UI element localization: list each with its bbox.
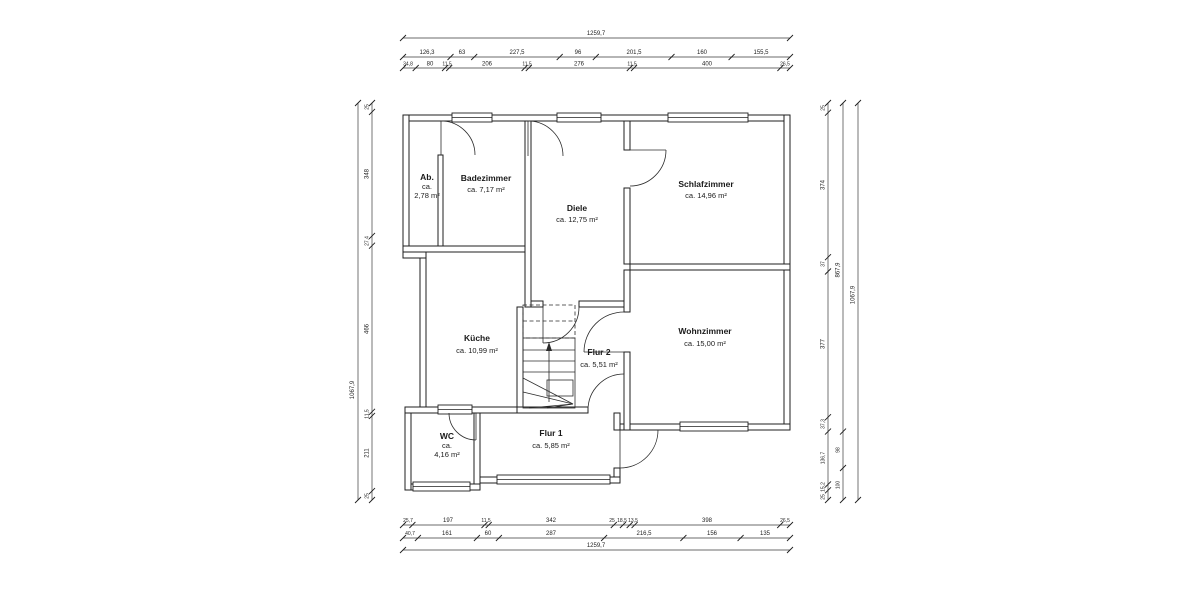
dim-label: 11,5 [481,518,491,524]
dim-label: 201,5 [626,50,642,56]
room-name: Flur 2 [587,347,610,357]
floor-plan-drawing: Ab. ca. 2,78 m² Badezimmer ca. 7,17 m² D… [0,0,1200,600]
room-name: Ab. [420,172,434,182]
dim-label: 15,2 [821,482,827,492]
door-icon [441,121,475,155]
window-icon [438,405,472,414]
dim-label: 348 [365,168,371,179]
dim-label: 276 [574,62,585,68]
dimension-top: 1259,7 126,3 63 227,5 96 201,5 160 155,5… [400,31,793,71]
dim-label: 400 [702,62,713,68]
dim-label: 11,5 [627,62,637,68]
dim-label: 867,9 [836,262,842,278]
dim-label: 25 [821,494,827,500]
room-area: ca. 5,85 m² [532,441,570,450]
dim-label: 18,5 [617,518,627,524]
dim-label: 98 [836,447,842,453]
dim-label: 342 [546,518,557,524]
room-name: Wohnzimmer [678,326,732,336]
dim-label: 37,3 [821,419,827,429]
dim-label: 206 [482,62,493,68]
door-icon [584,312,624,352]
dim-label: 60 [485,531,492,537]
dimension-right: 25 374 37 377 37,3 136,7 15,2 25 867,9 9… [821,100,862,503]
room-labels: Ab. ca. 2,78 m² Badezimmer ca. 7,17 m² D… [414,172,734,459]
dim-label: 11,5 [442,62,452,68]
door-icon [588,374,624,410]
door-icon [630,150,666,186]
dim-label: 25 [365,493,371,499]
dim-label: 27,4 [365,236,371,246]
dim-label: 80 [427,62,434,68]
dim-label: 1067,9 [851,285,857,304]
window-icon [413,482,470,491]
dim-label: 37 [821,261,827,267]
room-area: ca. 15,00 m² [684,339,726,348]
dimension-bottom: 25,7 197 11,5 342 25 18,5 13,5 398 26,5 … [400,518,793,553]
window-icon [497,475,610,484]
dim-label: 13,5 [628,518,638,524]
dim-label: 1259,7 [587,543,606,549]
room-name: Schlafzimmer [678,179,734,189]
room-area: ca. 12,75 m² [556,215,598,224]
dim-label: 25,7 [403,518,413,524]
dim-label: 161 [442,531,453,537]
dim-label: 1259,7 [587,31,606,37]
dim-label: 155,5 [753,50,769,56]
dim-label: 96 [575,50,582,56]
dim-label: 25 [821,105,827,111]
room-label-diele: Diele ca. 12,75 m² [556,203,598,224]
dim-label: 398 [702,518,713,524]
room-name: Küche [464,333,490,343]
dim-label: 25 [365,104,371,110]
room-label-kueche: Küche ca. 10,99 m² [456,333,498,355]
staircase [523,305,575,408]
dim-label: 466 [365,323,371,334]
room-area: 2,78 m² [414,191,440,200]
door-icon [620,430,658,468]
room-area: ca. [442,441,452,450]
room-area: ca. 7,17 m² [467,185,505,194]
dim-label: 126,3 [419,50,435,56]
dim-label: 135 [760,531,771,537]
room-label-schlafzimmer: Schlafzimmer ca. 14,96 m² [678,179,734,200]
room-name: Diele [567,203,588,213]
dim-label: 1067,9 [350,380,356,399]
room-area: ca. 10,99 m² [456,346,498,355]
room-area: ca. 14,96 m² [685,191,727,200]
dim-label: 40,7 [405,531,415,537]
dim-label: 287 [546,531,557,537]
dim-label: 26,5 [780,62,790,68]
door-icon [528,121,563,156]
dim-label: 25 [609,518,615,524]
room-label-wohnzimmer: Wohnzimmer ca. 15,00 m² [678,326,732,348]
window-icon [668,113,748,122]
floor-plan-page: Ab. ca. 2,78 m² Badezimmer ca. 7,17 m² D… [0,0,1200,600]
dim-label: 227,5 [509,50,525,56]
window-icon [452,113,492,122]
dim-label: 156 [707,531,718,537]
dim-label: 160 [697,50,708,56]
dim-label: 11,5 [522,62,532,68]
room-name: Flur 1 [539,428,562,438]
room-area: ca. [422,182,432,191]
room-area: ca. 5,51 m² [580,360,618,369]
room-label-flur1: Flur 1 ca. 5,85 m² [532,428,570,450]
room-label-badezimmer: Badezimmer ca. 7,17 m² [461,173,512,194]
dim-label: 100 [836,481,842,490]
room-label-wc: WC ca. 4,16 m² [434,431,460,459]
dim-label: 136,7 [821,452,827,465]
dim-label: 34,8 [403,62,413,68]
room-name: WC [440,431,454,441]
dim-label: 26,5 [780,518,790,524]
room-label-ab: Ab. ca. 2,78 m² [414,172,440,200]
window-icon [680,422,748,431]
dim-label: 11,5 [365,409,371,419]
walls [403,115,790,490]
dimension-left: 1067,9 25 348 27,4 466 11,5 211 25 [350,100,375,503]
dim-label: 374 [821,179,827,190]
room-area: 4,16 m² [434,450,460,459]
window-icon [557,113,601,122]
room-label-flur2: Flur 2 ca. 5,51 m² [580,347,618,369]
dim-label: 216,5 [636,531,652,537]
dim-label: 377 [821,338,827,349]
room-name: Badezimmer [461,173,512,183]
dim-label: 211 [365,448,371,458]
dim-label: 197 [443,518,454,524]
dim-label: 63 [459,50,466,56]
